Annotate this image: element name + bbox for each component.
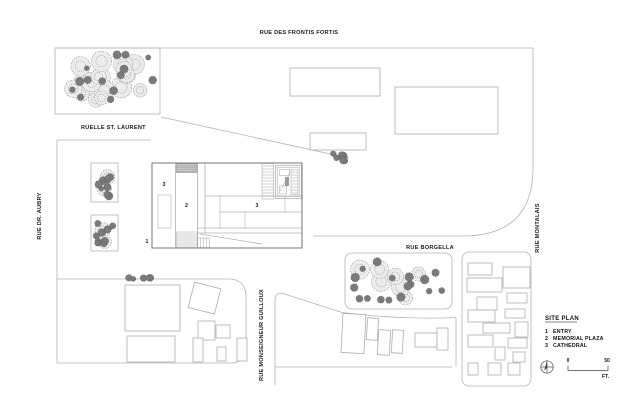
plan-line bbox=[467, 278, 502, 292]
tree-small bbox=[405, 273, 413, 281]
tree-small bbox=[99, 78, 106, 85]
tree-small bbox=[95, 181, 102, 188]
tree-small bbox=[360, 266, 366, 272]
tree-small bbox=[84, 66, 89, 71]
legend-label: CATHEDRAL bbox=[553, 343, 588, 349]
legend: SITE PLAN 1 ENTRY 2 MEMORIAL PLAZA 3 CAT… bbox=[545, 316, 604, 349]
scale-bar: 0 50 FT. bbox=[567, 358, 610, 380]
tree-small bbox=[77, 94, 83, 100]
cathedral-outer-wall bbox=[152, 163, 302, 248]
legend-label: MEMORIAL PLAZA bbox=[553, 336, 604, 342]
tree-small bbox=[351, 273, 360, 282]
tree-small bbox=[420, 275, 429, 284]
tree-small bbox=[95, 220, 101, 226]
plan-line bbox=[391, 330, 403, 354]
tree-small bbox=[110, 87, 118, 95]
tree-small bbox=[439, 288, 445, 294]
tree-small bbox=[356, 295, 363, 302]
tree-small bbox=[334, 155, 340, 161]
tree-small bbox=[76, 77, 84, 85]
plan-line bbox=[377, 330, 390, 356]
tree-small bbox=[389, 275, 395, 281]
plan-line bbox=[477, 297, 497, 310]
street-label-borgella: RUE BORGELLA bbox=[406, 245, 454, 251]
tree-small bbox=[104, 184, 111, 191]
tree-small bbox=[340, 156, 348, 164]
tree-small bbox=[373, 258, 381, 266]
legend-item-plaza: 2 MEMORIAL PLAZA bbox=[545, 336, 604, 342]
plan-line bbox=[217, 347, 226, 361]
scale-unit: FT. bbox=[602, 374, 610, 380]
plan-line bbox=[437, 328, 448, 350]
street-label-dr-aubry: RUE DR. AUBRY bbox=[37, 192, 43, 239]
site-plan-page: 1 3 2 3 RUE DES FRONTIS FORTIS RUELLE ST… bbox=[0, 0, 640, 414]
legend-item-cathedral: 3 CATHEDRAL bbox=[545, 343, 588, 349]
tree-small bbox=[426, 288, 432, 294]
legend-label: ENTRY bbox=[553, 329, 572, 335]
legend-num: 2 bbox=[545, 336, 548, 342]
tree-small bbox=[95, 240, 101, 246]
plan-line bbox=[468, 310, 495, 322]
tree-small bbox=[377, 296, 384, 303]
tree-small bbox=[146, 275, 151, 280]
plan-line bbox=[127, 336, 175, 362]
plan-line bbox=[508, 363, 520, 375]
scale-zero: 0 bbox=[567, 358, 570, 364]
tree-small bbox=[107, 96, 114, 103]
plan-line bbox=[198, 321, 215, 340]
plan-line bbox=[507, 293, 527, 303]
plan-line bbox=[495, 347, 505, 360]
street-label-st-laurent: RUELLE ST. LAURENT bbox=[81, 125, 146, 131]
plan-line bbox=[508, 338, 527, 348]
plan-line bbox=[237, 338, 247, 361]
tree-small bbox=[110, 223, 116, 229]
scale-fifty: 50 bbox=[604, 358, 610, 364]
plan-line bbox=[503, 267, 530, 288]
marker-cathedral-b: 3 bbox=[256, 203, 259, 209]
plan-line bbox=[515, 322, 528, 337]
street-label-guilloux: RUE MONSEIGNEUR GUILLOUX bbox=[259, 289, 265, 381]
plan-line bbox=[310, 133, 366, 150]
plan-line bbox=[188, 282, 220, 314]
plan-line bbox=[366, 318, 379, 341]
tree-small bbox=[386, 297, 392, 303]
north-arrow-icon bbox=[541, 361, 553, 373]
tree-small bbox=[397, 293, 405, 301]
tree-small bbox=[432, 269, 439, 276]
legend-num: 3 bbox=[545, 343, 548, 349]
plan-line bbox=[285, 177, 289, 186]
tree-small bbox=[101, 241, 107, 247]
marker-plaza: 2 bbox=[185, 203, 188, 209]
tree-small bbox=[350, 284, 358, 292]
cathedral-building bbox=[152, 163, 302, 248]
tree-large bbox=[95, 91, 109, 105]
tree-small bbox=[105, 175, 111, 181]
plan-line bbox=[216, 325, 230, 338]
marker-entry: 1 bbox=[146, 239, 149, 245]
plan-line bbox=[415, 333, 437, 347]
tree-small bbox=[131, 276, 136, 281]
tree-small bbox=[122, 51, 129, 58]
legend-item-entry: 1 ENTRY bbox=[545, 329, 572, 335]
tree-small bbox=[120, 65, 128, 73]
tree-small bbox=[404, 282, 412, 290]
plan-line bbox=[193, 338, 203, 362]
plaza-entry-band bbox=[177, 164, 198, 173]
tree-small bbox=[70, 87, 76, 93]
legend-title: SITE PLAN bbox=[545, 316, 579, 322]
plan-line bbox=[488, 363, 501, 375]
tree-small bbox=[113, 51, 121, 59]
plan-line bbox=[125, 285, 180, 331]
tree-small bbox=[146, 55, 151, 60]
plan-line bbox=[468, 263, 492, 275]
plan-line bbox=[568, 366, 608, 371]
tree-large bbox=[91, 51, 111, 71]
plan-line bbox=[341, 313, 366, 353]
plan-line bbox=[513, 352, 525, 362]
plan-line bbox=[468, 335, 493, 347]
tree-large bbox=[133, 84, 147, 98]
site-plan-drawing: 1 3 2 3 RUE DES FRONTIS FORTIS RUELLE ST… bbox=[0, 0, 640, 414]
plan-line bbox=[544, 361, 547, 371]
tree-small bbox=[149, 76, 157, 84]
street-label-frontis-fortis: RUE DES FRONTIS FORTIS bbox=[260, 30, 339, 36]
tree-small bbox=[104, 191, 111, 198]
stairs bbox=[177, 234, 197, 246]
tree-small bbox=[364, 295, 370, 301]
plan-line bbox=[290, 68, 380, 96]
marker-cathedral-a: 3 bbox=[163, 182, 166, 188]
street-label-montalais: RUE MONTALAIS bbox=[535, 203, 541, 252]
plan-line bbox=[468, 363, 478, 375]
legend-num: 1 bbox=[545, 329, 548, 335]
tree-small bbox=[84, 76, 91, 83]
plan-line bbox=[505, 309, 525, 318]
plan-line bbox=[483, 323, 510, 333]
plan-line bbox=[395, 87, 498, 134]
